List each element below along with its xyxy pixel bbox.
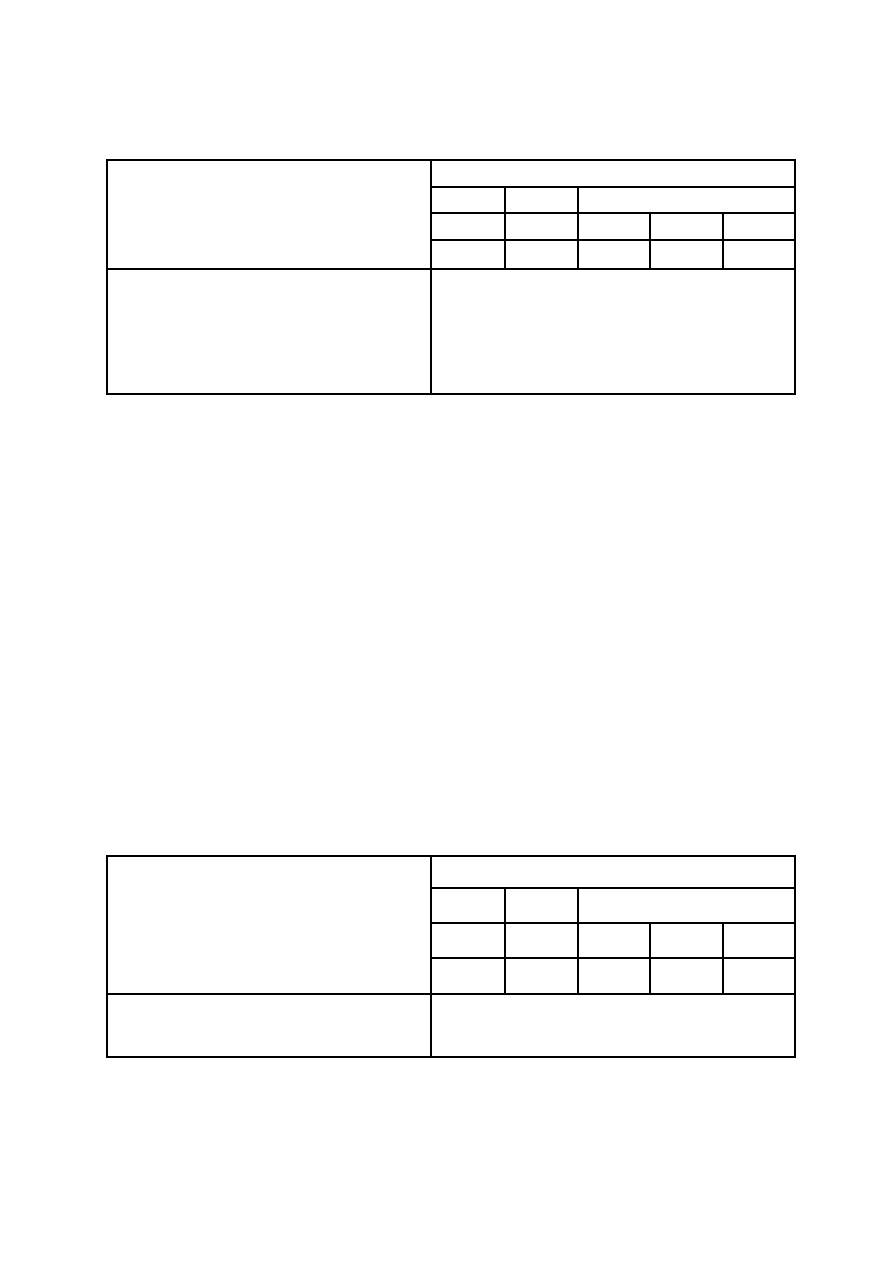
lower-title-band-cell <box>431 856 795 888</box>
table-cell <box>578 923 650 958</box>
document-page <box>0 0 893 1263</box>
table-row <box>107 269 795 394</box>
upper-body-cell <box>431 269 795 394</box>
lower-left-header-cell <box>107 856 431 994</box>
table-cell <box>431 187 505 213</box>
upper-form-table <box>106 159 796 395</box>
table-cell <box>431 888 505 923</box>
table-cell <box>431 240 505 269</box>
table-cell <box>578 958 650 994</box>
table-cell <box>650 213 723 240</box>
table-row <box>107 160 795 187</box>
table-cell <box>505 958 578 994</box>
lower-body-cell <box>431 994 795 1057</box>
table-cell <box>578 240 650 269</box>
table-cell <box>723 958 795 994</box>
table-row <box>107 994 795 1057</box>
table-cell <box>578 187 795 213</box>
table-cell <box>723 213 795 240</box>
table-cell <box>650 240 723 269</box>
table-cell <box>505 888 578 923</box>
table-cell <box>578 213 650 240</box>
table-cell <box>578 888 795 923</box>
table-cell <box>505 240 578 269</box>
lower-form-table <box>106 855 796 1058</box>
table-cell <box>505 923 578 958</box>
table-cell <box>431 958 505 994</box>
table-cell <box>505 213 578 240</box>
table-cell <box>723 923 795 958</box>
table-cell <box>723 240 795 269</box>
table-cell <box>431 213 505 240</box>
table-cell <box>431 923 505 958</box>
table-row <box>107 856 795 888</box>
upper-title-band-cell <box>431 160 795 187</box>
upper-left-header-cell <box>107 160 431 269</box>
table-cell <box>505 187 578 213</box>
table-cell <box>650 958 723 994</box>
upper-left-footer-cell <box>107 269 431 394</box>
lower-left-footer-cell <box>107 994 431 1057</box>
table-cell <box>650 923 723 958</box>
